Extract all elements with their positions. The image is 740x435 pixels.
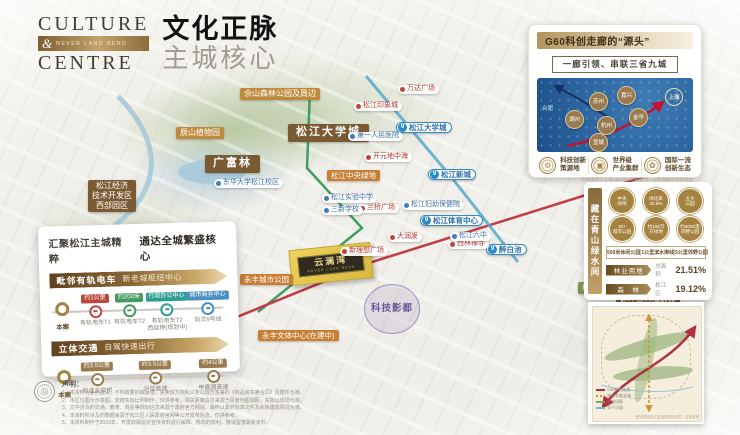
map-label-text: 醉白池 <box>499 245 522 254</box>
planning-inset-map: G60科创走廊城市发展主轴生态绿廊骨干河道 *图示源自松江区相关规划示意，仅供参… <box>592 306 702 422</box>
logo-english: CULTURE & NEVER LAND BEND CENTRE <box>38 14 149 73</box>
ecology-badge: 30+城市公园 <box>609 216 635 242</box>
poi-dot-icon <box>390 235 395 240</box>
map-label-park: 佘山森林公园及周边 <box>240 88 320 100</box>
stat-scope-label: 总面积 <box>655 262 671 278</box>
ecology-metrics: 500米休闲公园1公里滨水岸线5公里郊野公园 <box>606 246 706 259</box>
poi-dot-icon <box>404 203 409 208</box>
map-label-text: 松江经济技术开发区西部园区 <box>92 181 132 210</box>
ecology-badge: 五大公园 <box>677 188 703 214</box>
origin-pin-icon <box>55 302 69 316</box>
disclaimer-lines: 1、本资料为要约邀请，不构成要约或承诺，买卖双方权利义务以双方签署的《商品房买卖… <box>62 390 305 428</box>
hefei-label: 合肥 <box>542 104 553 112</box>
g60-region-map: 合肥 上海 苏州嘉兴湖州杭州金华宣城 <box>537 78 693 152</box>
stop-distance-tag: 约3.5公里 <box>81 362 114 371</box>
g60-feature-label: 国际一流创新生态 <box>665 157 691 173</box>
stop-node-icon <box>201 301 214 314</box>
map-label-text: 大润发 <box>397 233 418 242</box>
stop-distance-tag: 约3.5公里 <box>139 360 172 369</box>
map-label-metro: 9松江大学城 <box>396 122 452 133</box>
ecology-vertical-banner: 藏在青山绿水间 <box>588 188 602 294</box>
ecology-metric: 5公里郊野公园 <box>674 249 708 256</box>
map-label-blue: 松江妇幼保健院 <box>402 201 464 210</box>
stop-node-icon <box>89 305 102 318</box>
poi-dot-icon <box>350 134 355 139</box>
ecology-metric: 500米休闲公园 <box>607 249 640 256</box>
map-label-text: 科技影都 <box>371 303 413 315</box>
map-label-purple: 科技影都 <box>364 284 420 334</box>
ecology-badge: 绿化率25.8% <box>643 188 669 214</box>
map-label-text: 松江实验中学 <box>331 194 373 203</box>
poi-dot-icon <box>324 196 329 201</box>
logo-centre-text: CENTRE <box>38 53 149 73</box>
planning-inset-card: G60科创走廊城市发展主轴生态绿廊骨干河道 *图示源自松江区相关规划示意，仅供参… <box>588 302 704 424</box>
shanghai-node: 上海 <box>665 88 683 106</box>
stop-node-icon <box>160 303 173 316</box>
disclaimer-line: 4、本资料所涉及的数据来源于松江区人民政府官网等公开发布信息，仅供参考。 <box>62 413 305 421</box>
industry-cluster-icon: ▣ <box>591 157 608 174</box>
ecology-badge: 约168万方绿地 <box>643 216 669 242</box>
inset-legend: G60科创走廊城市发展主轴生态绿廊骨干河道 <box>596 387 631 411</box>
g60-feature: ✿国际一流创新生态 <box>641 157 693 174</box>
legend-swatch-gold <box>596 395 605 397</box>
legend-swatch-green <box>596 401 605 403</box>
transit-section-bar: 毗邻有轨电车新老城枢纽中心 <box>49 269 227 289</box>
logo-band-text: NEVER LAND BEND <box>56 41 127 47</box>
metro-line-icon: 9 <box>422 216 431 225</box>
inset-caption: *图示源自松江区相关规划示意，仅供参考 <box>635 415 699 420</box>
g60-city-node: 杭州 <box>597 116 616 135</box>
g60-card-title: G60科创走廊的“源头” <box>537 32 693 49</box>
map-label-blue: 东华大学松江校区 <box>214 179 283 188</box>
map-label-text: 松江新城 <box>441 170 471 179</box>
map-label-orange: 永丰文体中心(在建中) <box>258 330 339 341</box>
disclaimer-line: 5、本资料制作于2023年，开发商保留对宣传资料进行解释、修改的权利，敬请留意最… <box>62 420 305 428</box>
ecology-badge: 中央绿地 <box>609 188 635 214</box>
ecology-stats: 林业用地总面积21.51%森 林松江区19.12% <box>606 262 706 297</box>
transit-stop: 城市商务中心轨交9号线 <box>187 291 229 333</box>
transit-section: 毗邻有轨电车新老城枢纽中心本案约1公里有轨电车T1约200米有轨电车T2行政办公… <box>49 269 229 335</box>
map-label-text: 万达广场 <box>407 85 435 94</box>
g60-features: ⚙科技创新策源地▣世界级产业集群✿国际一流创新生态 <box>537 157 693 174</box>
stop-label: 有轨电车T2西延伸(规划中) <box>147 317 187 333</box>
poi-dot-icon <box>400 87 405 92</box>
ecology-stat-row: 林业用地总面积21.51% <box>606 262 706 278</box>
origin-marker: 本案 <box>50 301 75 332</box>
brand-logo: CULTURE & NEVER LAND BEND CENTRE 文化正脉 主城… <box>38 14 278 73</box>
legend-swatch-blue <box>596 407 605 409</box>
map-label-blue: 第一人民医院 <box>348 132 403 141</box>
transit-stop: 约200米有轨电车T2 <box>112 293 147 335</box>
stop-distance-tag: 约1公里 <box>81 294 109 303</box>
poi-dot-icon <box>324 208 329 213</box>
map-label-orange: 永丰城市公园 <box>240 274 293 285</box>
map-label-text: 东华大学松江校区 <box>223 179 279 188</box>
poi-dot-icon <box>342 249 347 254</box>
ecology-badges: 中央绿地绿化率25.8%五大公园30+城市公园约168万方绿地约5000亩郊野公… <box>606 188 706 242</box>
stop-label: 有轨电车T1 <box>80 319 111 327</box>
transit-stop: 行政办公中心有轨电车T2西延伸(规划中) <box>146 292 188 334</box>
transit-title-right: 通达全城繁盛核心 <box>139 232 227 264</box>
stat-category-bar: 林业用地 <box>606 265 651 276</box>
map-label-brownlg: 广富林 <box>205 155 260 173</box>
map-label-red: 万达广场 <box>398 85 439 94</box>
stat-scope-label: 松江区 <box>655 281 671 297</box>
map-label-red: 西林禅寺 <box>448 240 489 249</box>
metro-line-icon: 9 <box>488 245 497 254</box>
map-label-metro: 9松江新城 <box>428 169 476 180</box>
g60-feature: ⚙科技创新策源地 <box>537 157 588 174</box>
map-label-park: 辰山植物园 <box>176 127 224 139</box>
poi-dot-icon <box>450 242 455 247</box>
stop-distance-tag: 城市商务中心 <box>186 291 228 301</box>
stop-label: 轨交9号线 <box>194 316 222 324</box>
logo-chinese: 文化正脉 主城核心 <box>162 14 278 73</box>
map-label-text: 松江六中 <box>459 232 487 241</box>
g60-city-node: 湖州 <box>565 110 584 129</box>
map-label-text: 永丰城市公园 <box>244 275 289 284</box>
map-label-text: 松江印象城 <box>363 102 398 111</box>
g60-feature-label: 科技创新策源地 <box>560 157 586 173</box>
disclaimer: ◎ 声明： 1、本资料为要约邀请，不构成要约或承诺，买卖双方权利义务以双方签署的… <box>34 379 340 428</box>
map-label-blue: 三新学校 <box>322 206 363 215</box>
tech-innovation-icon: ⚙ <box>539 157 556 174</box>
seal-icon: ◎ <box>34 381 55 402</box>
section-bar-light: 自驾快速出行 <box>104 341 155 353</box>
g60-city-node: 金华 <box>629 108 648 127</box>
poster-subtitle: 主城核心 <box>162 44 278 73</box>
metro-line-icon: 9 <box>430 170 439 179</box>
transit-stop: 约1公里有轨电车T1 <box>78 294 113 336</box>
map-label-blue: 松江六中 <box>450 232 491 241</box>
g60-city-node: 苏州 <box>589 92 608 111</box>
section-bar-bold: 立体交通 <box>58 341 98 355</box>
logo-gold-band: & NEVER LAND BEND <box>38 36 149 51</box>
map-label-text: 广富林 <box>213 157 252 169</box>
map-label-text: 松江体育中心 <box>433 216 478 225</box>
g60-card: G60科创走廊的“源头” 一廊引领、串联三省九城 合肥 上海 苏州嘉兴湖州杭州金… <box>528 24 702 178</box>
map-label-red: 新理想广场 <box>340 247 388 256</box>
poi-dot-icon <box>216 181 221 186</box>
stop-distance-tag: 约4公里 <box>199 359 227 368</box>
disclaimer-body: 声明： 1、本资料为要约邀请，不构成要约或承诺，买卖双方权利义务以双方签署的《商… <box>62 379 305 428</box>
map-label-text: 西林禅寺 <box>457 240 485 249</box>
stop-distance-tag: 约200米 <box>115 293 143 302</box>
map-label-red: 开元地中海 <box>364 153 412 162</box>
stat-value: 19.12% <box>675 284 706 294</box>
poster: 云澜湾 NEVER LAND BEND 佘山森林公园及周边辰山植物园广富林松江大… <box>0 0 740 435</box>
map-label-text: 永丰文体中心(在建中) <box>262 331 335 340</box>
stat-value: 21.51% <box>675 265 706 275</box>
transit-line: 本案约1公里有轨电车T1约200米有轨电车T2行政办公中心有轨电车T2西延伸(规… <box>50 297 229 335</box>
shanghai-label: 上海 <box>668 93 679 101</box>
map-label-text: 佘山森林公园及周边 <box>244 89 316 98</box>
g60-card-subtitle: 一廊引领、串联三省九城 <box>552 56 679 73</box>
ecology-card: 藏在青山绿水间 中央绿地绿化率25.8%五大公园30+城市公园约168万方绿地约… <box>584 182 712 300</box>
stop-label: 有轨电车T2 <box>114 318 145 326</box>
poi-dot-icon <box>452 234 457 239</box>
g60-city-node: 宣城 <box>589 133 608 152</box>
ecology-metric: 1公里滨水岸线 <box>640 249 674 256</box>
transit-section-bar: 立体交通自驾快速出行 <box>51 336 229 356</box>
disclaimer-line: 3、文中涉及的交通、教育、商业等规划信息来源于政府官方网站，最终以政府批准文件及… <box>62 405 305 413</box>
map-label-blue: 松江实验中学 <box>322 194 377 203</box>
poster-title: 文化正脉 <box>162 14 278 44</box>
map-label-text: 开元地中海 <box>373 153 408 162</box>
disclaimer-line: 1、本资料为要约邀请，不构成要约或承诺，买卖双方权利义务以双方签署的《商品房买卖… <box>62 390 305 398</box>
g60-feature: ▣世界级产业集群 <box>588 157 640 174</box>
logo-ampersand: & <box>42 37 52 50</box>
transit-stops: 约1公里有轨电车T1约200米有轨电车T2行政办公中心有轨电车T2西延伸(规划中… <box>78 291 229 336</box>
map-label-text: 松江妇幼保健院 <box>411 201 460 210</box>
stop-distance-tag: 行政办公中心 <box>145 292 187 302</box>
ecology-vertical-title: 藏在青山绿水间 <box>589 204 601 278</box>
map-label-orange: 松江中央绿地 <box>327 170 380 181</box>
logo-culture-text: CULTURE <box>38 14 149 34</box>
transit-card: 汇聚松江主城精粹 通达全城繁盛核心 毗邻有轨电车新老城枢纽中心本案约1公里有轨电… <box>38 221 240 376</box>
stat-category-bar: 森 林 <box>606 284 651 295</box>
map-label-red: 大润发 <box>388 233 422 242</box>
map-label-red: 兰桥广场 <box>358 204 399 213</box>
innovation-eco-icon: ✿ <box>644 157 661 174</box>
legend-swatch-red <box>596 389 605 391</box>
map-label-brown: 松江经济技术开发区西部园区 <box>88 180 136 212</box>
map-label-metro: 9醉白池 <box>486 244 527 255</box>
origin-label: 本案 <box>51 321 75 332</box>
metro-line-icon: 9 <box>398 123 407 132</box>
map-label-text: 第一人民医院 <box>357 132 399 141</box>
map-label-text: 兰桥广场 <box>367 204 395 213</box>
disclaimer-heading: 声明： <box>62 379 305 389</box>
map-label-text: 松江大学城 <box>409 123 447 132</box>
map-label-text: 松江中央绿地 <box>331 171 376 180</box>
legend-label: 骨干河道 <box>607 405 623 411</box>
poi-dot-icon <box>366 155 371 160</box>
map-label-red: 松江印象城 <box>354 102 402 111</box>
map-label-text: 三新学校 <box>331 206 359 215</box>
g60-city-node: 嘉兴 <box>617 86 636 105</box>
map-label-text: 新理想广场 <box>349 247 384 256</box>
inset-legend-row: 骨干河道 <box>596 405 631 411</box>
section-bar-bold: 毗邻有轨电车 <box>56 273 116 288</box>
transit-card-title: 汇聚松江主城精粹 通达全城繁盛核心 <box>48 231 227 267</box>
g60-feature-label: 世界级产业集群 <box>612 157 638 173</box>
transit-title-left: 汇聚松江主城精粹 <box>48 233 132 265</box>
map-label-text: 辰山植物园 <box>180 128 220 137</box>
ecology-stat-row: 森 林松江区19.12% <box>606 281 706 297</box>
ecology-badge: 约5000亩郊野公园 <box>677 216 703 242</box>
poi-dot-icon <box>356 104 361 109</box>
map-label-metro: 9松江体育中心 <box>420 215 483 226</box>
disclaimer-line: 2、本区位图为示意图，非按实际比例制作，仅供参考，相关距离信息来源于百度地图测距… <box>62 398 305 406</box>
section-bar-light: 新老城枢纽中心 <box>122 272 182 285</box>
stop-node-icon <box>123 304 136 317</box>
